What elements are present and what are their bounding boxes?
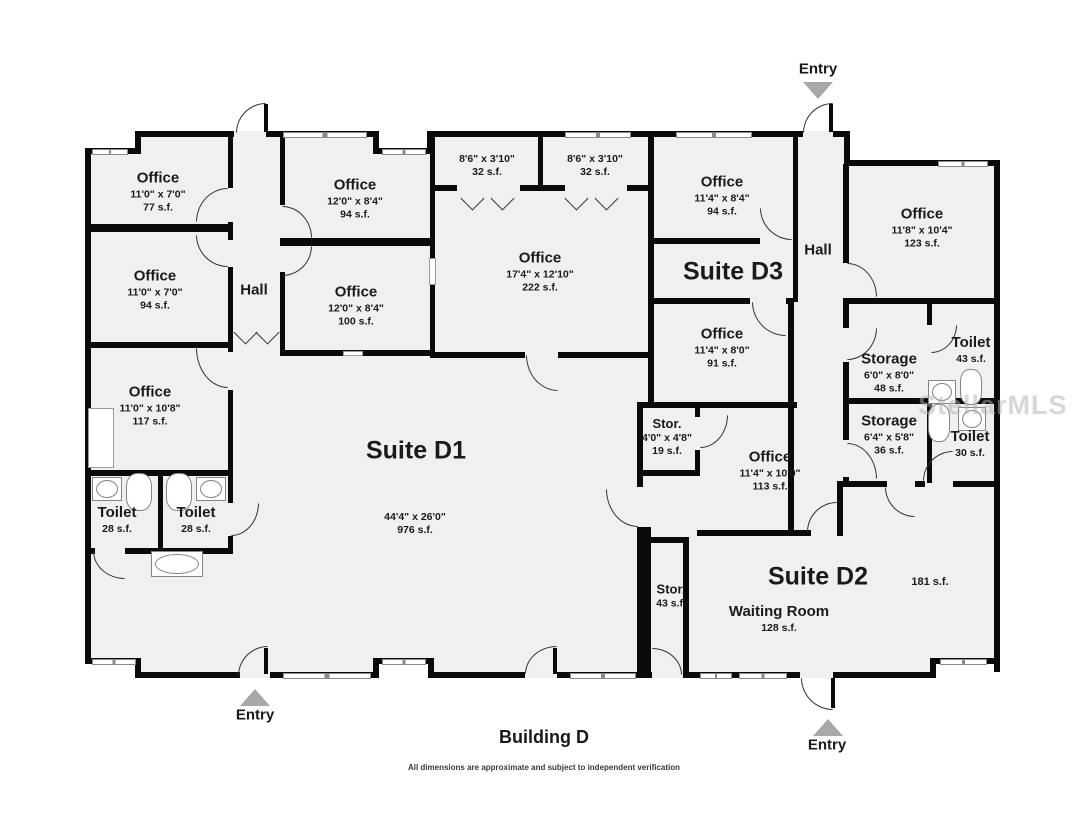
wall-pass-through (343, 351, 363, 356)
exterior-notch (936, 664, 1000, 678)
door-arc (236, 103, 266, 133)
wall (637, 402, 797, 408)
wall (697, 530, 811, 536)
room-label-office-77: Office 11'0" x 7'0" 77 s.f. (130, 170, 185, 215)
room-label-office-123: Office 11'8" x 10'4" 123 s.f. (891, 206, 952, 251)
room-label-storage-48: Storage 6'0" x 8'0" 48 s.f. (861, 351, 917, 396)
window (283, 673, 371, 679)
wall (538, 131, 543, 191)
wall (843, 298, 997, 304)
exterior-notch (373, 664, 434, 678)
wall (837, 481, 843, 536)
wall (793, 131, 798, 302)
room-label-office-117: Office 11'0" x 10'8" 117 s.f. (119, 384, 180, 429)
entry-top-arrow-icon (803, 82, 833, 99)
wall (158, 470, 163, 554)
sink-icon (151, 551, 203, 577)
entry-top-label: Entry (799, 61, 837, 80)
door-leaf (553, 648, 557, 674)
wall (915, 481, 925, 487)
page-title: Building D (499, 726, 589, 749)
exterior-notch (850, 131, 1000, 160)
window (382, 659, 426, 665)
built-in-closet (88, 408, 114, 468)
window (565, 132, 631, 138)
room-label-closet-32a: 8'6" x 3'10" 32 s.f. (459, 153, 515, 179)
entry-bottom-left-arrow-icon (240, 689, 270, 706)
window (940, 659, 987, 665)
wall (280, 131, 285, 205)
wall (520, 185, 565, 191)
wall (228, 473, 233, 503)
window (382, 149, 426, 155)
door-leaf (264, 648, 268, 674)
entry-bottom-right-arrow-icon (813, 719, 843, 736)
floor-plan: Office 11'0" x 7'0" 77 s.f. Office 11'0"… (0, 0, 1087, 815)
room-label-office-222: Office 17'4" x 12'10" 222 s.f. (506, 250, 574, 295)
window (676, 132, 752, 138)
wall (228, 390, 233, 473)
wall (648, 298, 750, 304)
suite-d2-area: 181 s.f. (911, 576, 948, 590)
wall (927, 298, 932, 325)
window (739, 673, 787, 679)
entry-bottom-right-label: Entry (808, 737, 846, 756)
wall (228, 131, 233, 188)
window (283, 132, 367, 138)
wall (430, 131, 435, 258)
window (92, 659, 136, 665)
wall (373, 658, 379, 678)
wall (637, 470, 700, 476)
window (92, 149, 128, 155)
wall-pass-through (429, 258, 436, 285)
room-label-office-94c: Office 11'4" x 8'4" 94 s.f. (694, 174, 749, 219)
room-label-office-100: Office 12'0" x 8'4" 100 s.f. (328, 284, 384, 329)
room-label-stor-19: Stor. 4'0" x 4'8" 19 s.f. (642, 416, 692, 459)
hall-left-label: Hall (240, 282, 268, 301)
wall (280, 272, 285, 350)
wall (637, 537, 689, 543)
entry-bottom-left-label: Entry (236, 707, 274, 726)
room-label-toilet-30: Toilet 30 s.f. (951, 428, 990, 460)
sink-icon (196, 477, 226, 501)
exterior-notch (85, 664, 135, 678)
room-label-toilet-43: Toilet 43 s.f. (952, 334, 991, 366)
room-label-office-91: Office 11'4" x 8'0" 91 s.f. (694, 326, 749, 371)
wall (430, 352, 525, 358)
wall (280, 238, 430, 246)
door-leaf (829, 104, 833, 132)
exterior-notch (85, 131, 135, 149)
door-leaf (264, 104, 268, 132)
room-label-closet-32b: 8'6" x 3'10" 32 s.f. (567, 153, 623, 179)
wall (648, 131, 654, 408)
watermark: StellarMLS (918, 390, 1068, 421)
wall (843, 300, 849, 328)
suite-d3-label: Suite D3 (683, 256, 783, 287)
hall-right-label: Hall (804, 242, 832, 261)
window (570, 673, 636, 679)
wall (434, 672, 525, 678)
wall (788, 298, 794, 408)
wall (135, 131, 234, 137)
room-label-office-94a: Office 11'0" x 7'0" 94 s.f. (127, 268, 182, 313)
wall (637, 527, 651, 678)
disclaimer-text: All dimensions are approximate and subje… (408, 763, 680, 773)
door-leaf (831, 678, 835, 708)
room-label-waiting-room: Waiting Room 128 s.f. (729, 603, 829, 635)
exterior-notch (373, 131, 433, 148)
wall (648, 238, 760, 244)
suite-d1-label: Suite D1 (366, 435, 466, 466)
room-label-stor-43: Stor. 43 s.f. (656, 581, 686, 610)
wall (432, 185, 457, 191)
room-label-toilet-28b: Toilet 28 s.f. (177, 504, 216, 536)
room-label-toilet-28a: Toilet 28 s.f. (98, 504, 137, 536)
wall (833, 672, 933, 678)
wall (430, 285, 435, 356)
wall (228, 267, 233, 350)
room-label-office-94b: Office 12'0" x 8'4" 94 s.f. (327, 177, 383, 222)
window (938, 161, 988, 167)
wall (558, 352, 653, 358)
wall (953, 481, 997, 487)
wall (843, 164, 849, 263)
sink-icon (92, 477, 122, 501)
wall (85, 224, 233, 232)
wall (228, 342, 233, 352)
suite-d1-dims: 44'4" x 26'0" 976 s.f. (384, 511, 446, 537)
door-arc (801, 678, 833, 710)
room-label-office-113: Office 11'4" x 10'0" 113 s.f. (739, 449, 800, 494)
room-label-storage-36: Storage 6'4" x 5'8" 36 s.f. (861, 413, 917, 458)
suite-d2-label: Suite D2 (768, 561, 868, 592)
window (700, 673, 732, 679)
wall (140, 672, 240, 678)
